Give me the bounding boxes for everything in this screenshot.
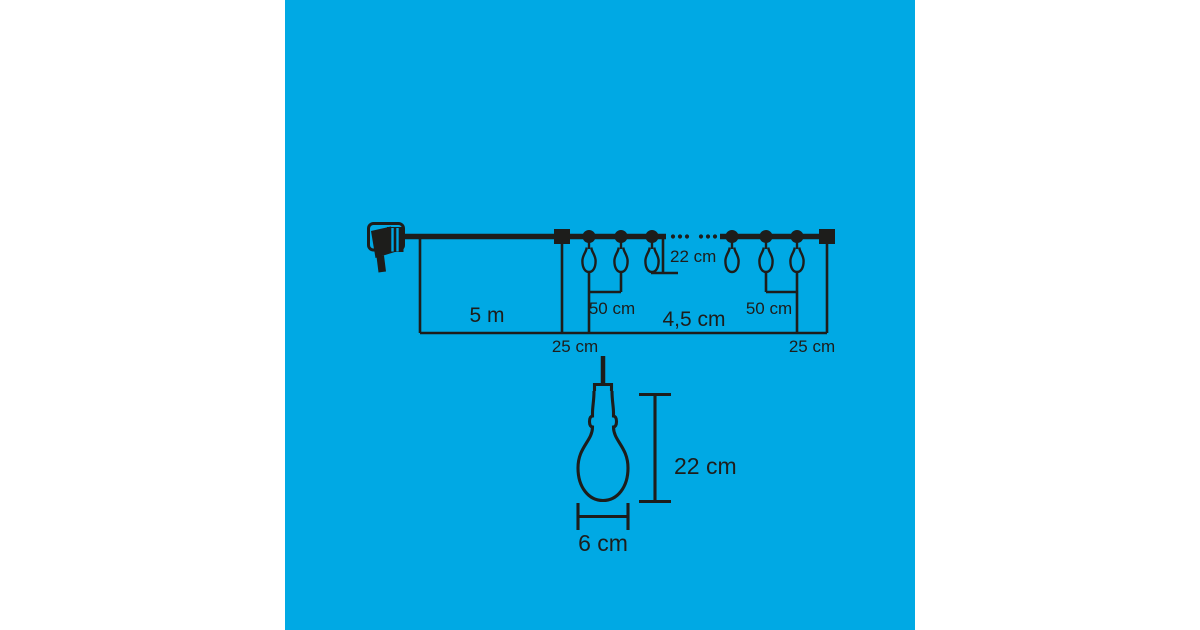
wire-break-dots	[671, 234, 717, 238]
detail-bulb-outline	[578, 391, 628, 501]
detail-height-dimension	[639, 395, 671, 502]
bulb-detail: 22 cm 6 cm	[578, 356, 737, 556]
bulb-clip-icon	[646, 230, 659, 243]
bulb-clip-icon	[726, 230, 739, 243]
total-length-label: 4,5 cm	[662, 308, 725, 331]
product-image-panel: 5 m 25 cm 50 cm 22 cm 4,5 cm 50 cm 25 cm…	[285, 0, 915, 630]
end-cap-icon	[819, 229, 835, 244]
spacing-left-label: 50 cm	[589, 299, 635, 318]
bulb-clip-icon	[583, 230, 596, 243]
pendant-bulb-icon	[582, 242, 595, 272]
dimension-diagram: 5 m 25 cm 50 cm 22 cm 4,5 cm 50 cm 25 cm…	[285, 0, 915, 630]
pendant-bulb-icon	[725, 242, 738, 272]
bulb-clip-icon	[791, 230, 804, 243]
drop-length-label: 22 cm	[670, 247, 716, 266]
detail-width-label: 6 cm	[578, 530, 628, 556]
page-canvas: 5 m 25 cm 50 cm 22 cm 4,5 cm 50 cm 25 cm…	[0, 0, 1200, 630]
end-offset-label: 25 cm	[789, 337, 835, 356]
bulb-clips	[583, 230, 804, 243]
pendant-bulb-icon	[759, 242, 772, 272]
detail-height-label: 22 cm	[674, 453, 737, 479]
detail-width-dimension	[578, 503, 628, 530]
bulb-clip-icon	[760, 230, 773, 243]
connector-block-icon	[554, 229, 570, 244]
pendant-bulb-icon	[790, 242, 803, 272]
pendant-bulb-icon	[645, 242, 658, 272]
power-plug-icon	[369, 224, 404, 273]
pendant-bulb-icon	[614, 242, 627, 272]
lead-length-label: 5 m	[469, 304, 504, 327]
lead-offset-label: 25 cm	[552, 337, 598, 356]
detail-bulb-cap	[595, 385, 612, 392]
spacing-right-label: 50 cm	[746, 299, 792, 318]
bulb-clip-icon	[615, 230, 628, 243]
